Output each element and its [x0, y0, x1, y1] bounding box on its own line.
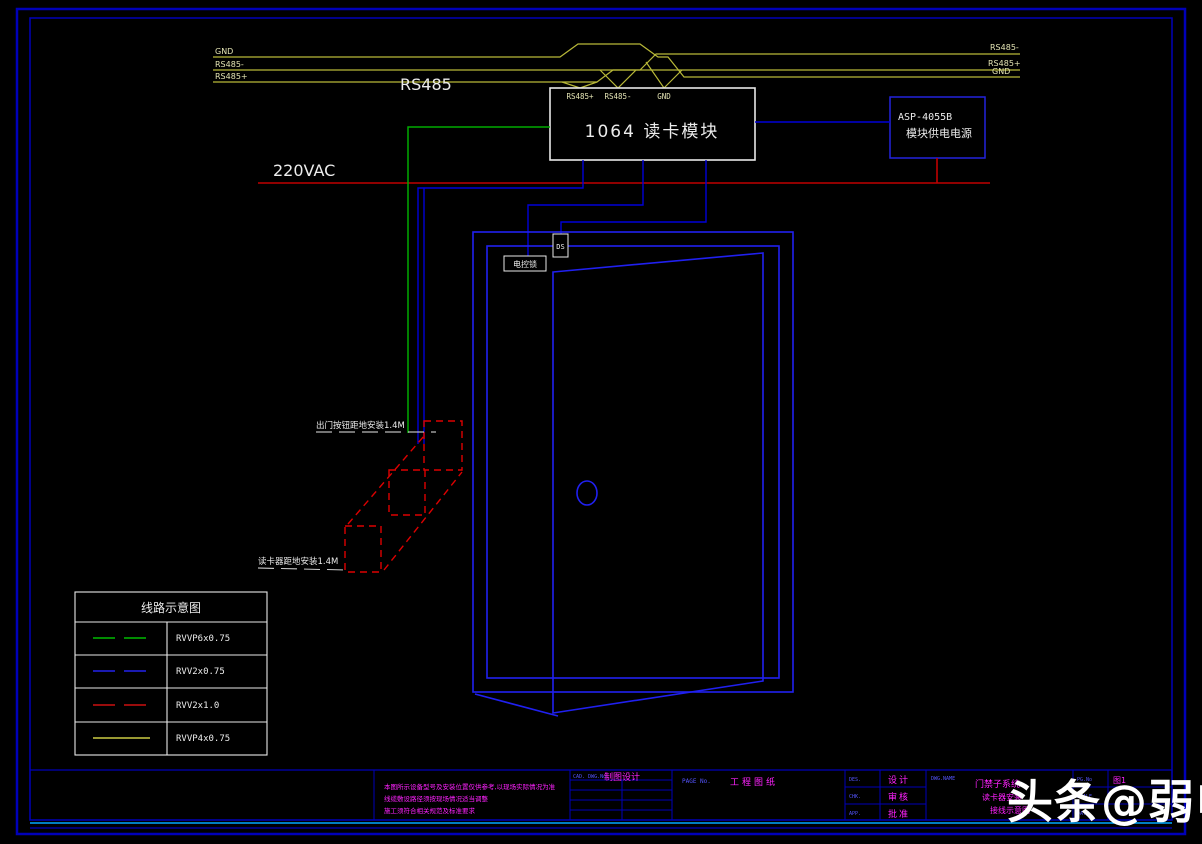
wall-devices: [345, 421, 462, 572]
legend-spec-1: RVV2x0.75: [176, 667, 225, 677]
reader-module-box: RS485+ RS485- GND 1064 读卡模块: [550, 88, 755, 160]
wall-device-notes: 出门按钮距地安装1.4M 读卡器距地安装1.4M: [258, 420, 436, 570]
sign-value-0: 设计: [888, 774, 910, 786]
rs485-bus-title: RS485: [400, 75, 452, 94]
wiring-diagram: GND RS485- RS485+ RS485- RS485+ GND RS48…: [0, 0, 1202, 844]
sign-value-1: 审核: [888, 791, 910, 803]
power-module-box: ASP-4055B 模块供电电源: [890, 97, 985, 158]
bus-labels: GND RS485- RS485+ RS485- RS485+ GND: [215, 43, 1021, 81]
door-assembly: [473, 232, 793, 716]
bus-right-label-gnd: GND: [992, 67, 1010, 76]
legend-table: 线路示意图 RVVP6x0.75 RVV2x0.75 RVV2x1.0 RVVP…: [75, 592, 267, 755]
legend-spec-3: RVVP4x0.75: [176, 734, 230, 744]
title-block-notes: 本图所示设备型号及安装位置仅供参考,以现场实际情况为准 线缆敷设路径须按现场情况…: [384, 782, 556, 815]
door-sensor-label: DS: [556, 243, 564, 251]
power-line-220vac: [258, 158, 990, 183]
cad-canvas: GND RS485- RS485+ RS485- RS485+ GND RS48…: [0, 0, 1202, 844]
reader-module-title: 1064 读卡模块: [585, 122, 720, 142]
note-line-1: 线缆敷设路径须按现场情况适当调整: [384, 794, 489, 803]
rs485-bus-lines: [213, 44, 1020, 88]
card-reader-note: 读卡器距地安装1.4M: [258, 556, 338, 567]
sign-label-2: APP.: [849, 811, 861, 817]
bus-left-label-rs485m: RS485-: [215, 60, 244, 69]
bus-right-label-rs485m: RS485-: [990, 43, 1019, 52]
reader-wire-green: [408, 127, 550, 433]
terminal-rs485m: RS485-: [604, 92, 631, 101]
terminal-gnd: GND: [657, 92, 671, 101]
power-module-model: ASP-4055B: [898, 112, 952, 123]
note-line-0: 本图所示设备型号及安装位置仅供参考,以现场实际情况为准: [384, 782, 556, 791]
exit-button-note: 出门按钮距地安装1.4M: [316, 420, 405, 431]
watermark: 头条@弱电: [1007, 775, 1202, 829]
page-cell-value: 工程图纸: [730, 776, 778, 788]
sign-value-2: 批准: [888, 808, 910, 820]
sign-label-0: DES.: [849, 777, 861, 783]
bus-left-label-rs485p: RS485+: [215, 72, 248, 81]
door-sensor: DS: [553, 234, 568, 257]
power-line-label: 220VAC: [273, 161, 335, 180]
name-cell-label: DWG.NAME: [931, 776, 955, 782]
bus-left-label-gnd: GND: [215, 47, 233, 56]
sign-label-1: CHK.: [849, 794, 861, 800]
page-cell-label: PAGE No.: [682, 778, 711, 785]
note-line-2: 施工须符合相关规范及标准要求: [384, 806, 476, 815]
legend-title: 线路示意图: [141, 600, 201, 615]
legend-spec-0: RVVP6x0.75: [176, 634, 230, 644]
door-lock-label: 电控锁: [513, 259, 537, 269]
power-module-name: 模块供电电源: [906, 126, 972, 140]
legend-spec-2: RVV2x1.0: [176, 701, 219, 711]
door-lock: 电控锁: [504, 256, 546, 271]
device-wires-blue: [418, 160, 706, 444]
terminal-rs485p: RS485+: [566, 92, 594, 101]
cad-cell-value: 制图设计: [604, 771, 640, 783]
